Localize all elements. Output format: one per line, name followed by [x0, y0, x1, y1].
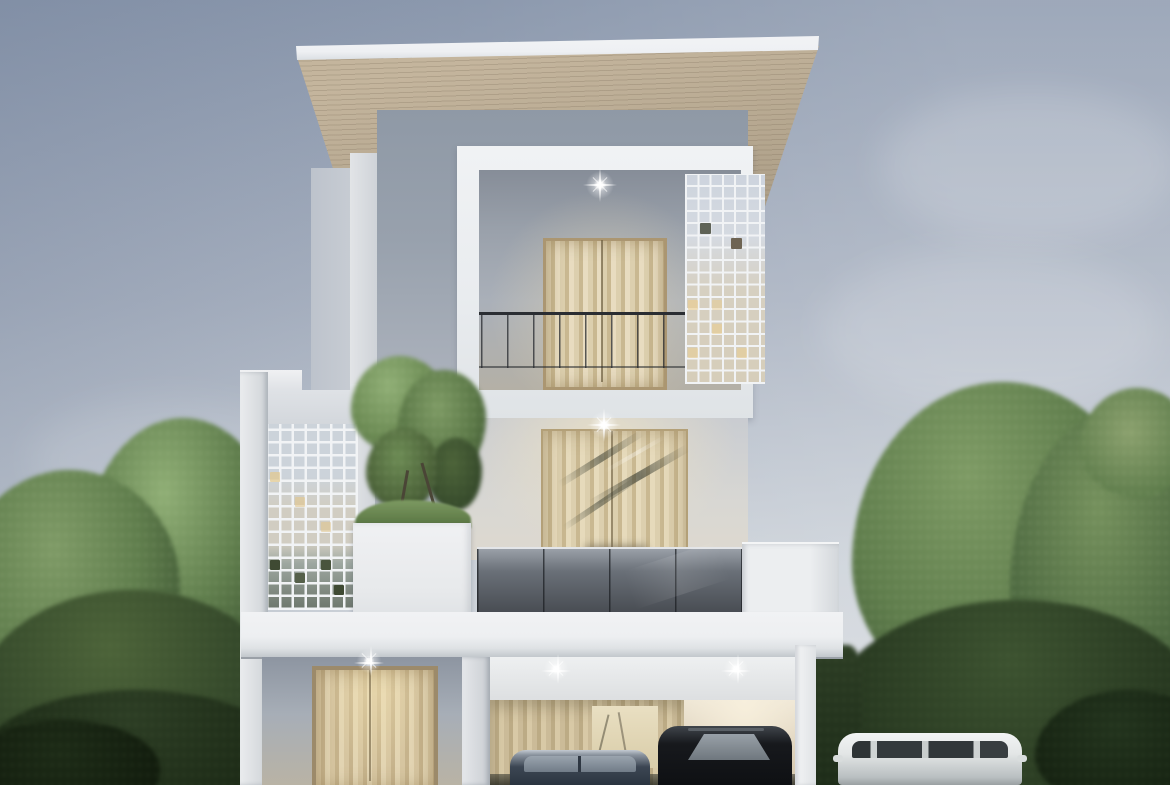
car-sedan-windshield — [676, 734, 776, 760]
railing-3f-bottomrail — [479, 366, 709, 368]
glassblock-dark-tile — [731, 238, 742, 249]
car-sedan-roof-highlight — [688, 728, 764, 731]
railing-3f-balusters — [481, 314, 709, 368]
glassblock-dark-tile — [700, 223, 711, 234]
window-1f-divider — [369, 670, 371, 781]
balcony-glass-railing — [477, 547, 743, 618]
glassblock-warm-tile — [688, 348, 698, 358]
glassblock-panel-3f — [685, 174, 765, 384]
car-suv-white-mirror — [1017, 755, 1027, 762]
scene-viewport — [0, 0, 1170, 785]
car-suv-white-windows — [852, 741, 1008, 758]
penthouse-side-wall — [311, 168, 352, 394]
car-suv-white — [838, 733, 1022, 785]
glassblock-warm-tile — [712, 324, 722, 334]
balcony3-interior — [479, 170, 741, 390]
screen-warm-tile — [295, 497, 305, 507]
divider-column-1f — [462, 657, 490, 785]
carport-ceiling — [490, 657, 800, 703]
cloud-right — [880, 90, 1170, 240]
screen-dark-tile — [295, 573, 305, 583]
window-1f-left — [312, 666, 438, 785]
screen-dark-tile — [321, 560, 331, 570]
glassblock-warm-tile — [712, 300, 722, 310]
floor2-slab — [241, 612, 843, 659]
screen-dark-tile — [270, 560, 280, 570]
screen-warm-tile — [321, 522, 331, 532]
glassblock-screen — [266, 424, 358, 610]
balcony-box-floor3 — [457, 146, 753, 418]
car-sedan-black — [658, 726, 792, 785]
glassblock-warm-tile — [737, 348, 747, 358]
downlight-3f — [583, 168, 617, 202]
car-suv-white-mirror — [833, 755, 843, 762]
railing-3f-toprail — [479, 312, 709, 315]
car-suv-dark-windshield-divider — [578, 756, 581, 772]
car-suv-dark — [510, 750, 650, 785]
screen-warm-tile — [270, 472, 280, 482]
roof-terrace-parapet — [742, 542, 839, 616]
carport-column-right — [795, 645, 816, 785]
screen-top-band — [266, 390, 358, 424]
glassblock-warm-tile — [688, 300, 698, 310]
screen-dark-tile — [334, 585, 344, 595]
